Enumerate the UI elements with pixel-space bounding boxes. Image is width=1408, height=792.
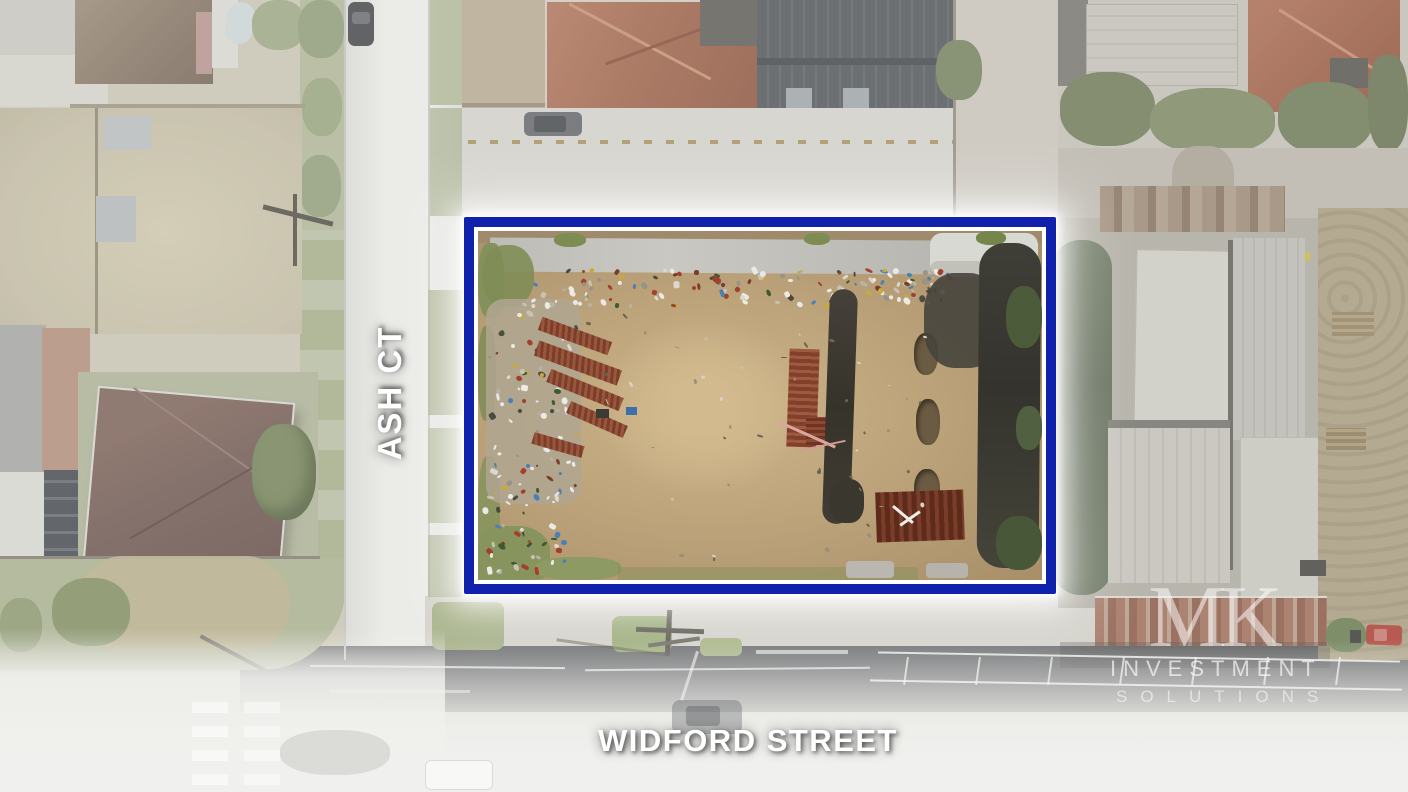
debris-dot bbox=[887, 429, 890, 432]
site-bush-right-a bbox=[1006, 286, 1042, 348]
debris-dot bbox=[558, 472, 561, 475]
debris-dot bbox=[494, 444, 498, 449]
debris-dot bbox=[693, 269, 698, 274]
debris-dot bbox=[548, 522, 557, 530]
debris-dot bbox=[581, 282, 587, 288]
debris-dot bbox=[487, 495, 494, 500]
debris-dot bbox=[588, 303, 591, 307]
debris-dot bbox=[923, 336, 927, 339]
debris-dot bbox=[729, 425, 732, 430]
debris-dot bbox=[552, 501, 555, 504]
debris-dot bbox=[508, 419, 513, 424]
debris-dot bbox=[763, 277, 767, 281]
debris-dot bbox=[857, 362, 862, 365]
property-boundary bbox=[464, 217, 1056, 594]
debris-dot bbox=[622, 314, 628, 320]
debris-dot bbox=[781, 357, 787, 359]
debris-dot bbox=[617, 280, 622, 285]
debris-dot bbox=[910, 292, 916, 298]
debris-dot bbox=[533, 282, 539, 287]
debris-dot bbox=[530, 304, 535, 309]
debris-dot bbox=[584, 298, 587, 301]
debris-zone-bottom-left bbox=[480, 479, 568, 574]
debris-dot bbox=[553, 388, 561, 394]
debris-dot bbox=[824, 546, 830, 552]
ghost-crossing-dash bbox=[192, 774, 228, 785]
debris-dot bbox=[736, 280, 741, 285]
debris-dot bbox=[560, 539, 566, 545]
debris-dot bbox=[919, 401, 922, 405]
debris-dot bbox=[793, 377, 796, 380]
debris-dot bbox=[554, 531, 561, 538]
debris-dot bbox=[859, 487, 862, 491]
debris-dot bbox=[550, 560, 554, 565]
debris-dot bbox=[536, 488, 539, 493]
ghost-crossing-dash bbox=[244, 702, 280, 713]
debris-dot bbox=[615, 303, 619, 309]
site-left-top-green bbox=[482, 245, 534, 307]
debris-dot bbox=[671, 497, 675, 501]
debris-dot bbox=[674, 346, 680, 349]
debris-dot bbox=[653, 275, 659, 280]
debris-dot bbox=[494, 524, 501, 529]
debris-dot bbox=[512, 364, 518, 368]
debris-dot bbox=[511, 344, 515, 348]
debris-dot bbox=[482, 506, 489, 515]
debris-dot bbox=[679, 553, 685, 557]
debris-dot bbox=[704, 337, 708, 341]
debris-dot bbox=[497, 452, 502, 456]
debris-dot bbox=[751, 266, 758, 275]
debris-dot bbox=[651, 447, 655, 449]
debris-dot bbox=[817, 470, 821, 474]
debris-dot bbox=[757, 434, 763, 438]
watermark-logo: MK INVESTMENT SOLUTIONS bbox=[1103, 576, 1321, 707]
debris-dot bbox=[541, 412, 549, 420]
debris-dot bbox=[530, 466, 535, 470]
ghost-crossing-dash bbox=[192, 750, 228, 761]
debris-dot bbox=[517, 408, 522, 413]
debris-dot bbox=[561, 288, 567, 291]
debris-dot bbox=[640, 282, 648, 290]
debris-dot bbox=[920, 503, 924, 508]
debris-dot bbox=[536, 400, 539, 402]
debris-dot bbox=[541, 541, 547, 546]
site-bush-right-b bbox=[996, 516, 1042, 570]
debris-dot bbox=[658, 292, 666, 300]
debris-dot bbox=[556, 547, 563, 553]
debris-dot bbox=[882, 269, 887, 273]
ghost-crossing-dash bbox=[244, 750, 280, 761]
debris-dot bbox=[496, 474, 502, 479]
debris-dot bbox=[490, 468, 499, 476]
watermark-line-solutions: SOLUTIONS bbox=[1103, 687, 1321, 707]
debris-dot bbox=[628, 303, 632, 308]
debris-dot bbox=[827, 288, 832, 292]
debris-dot bbox=[495, 507, 500, 514]
debris-dot bbox=[922, 279, 929, 284]
debris-dot bbox=[494, 463, 498, 468]
debris-dot bbox=[863, 432, 866, 435]
debris-dot bbox=[526, 309, 535, 318]
debris-dot bbox=[866, 523, 870, 527]
debris-dot bbox=[501, 524, 504, 527]
aerial-photo: ASH CT WIDFORD STREET MK INVESTMENT SOLU… bbox=[0, 0, 1408, 792]
property-site-photo bbox=[478, 231, 1042, 580]
debris-dot bbox=[491, 541, 496, 548]
debris-dot bbox=[505, 374, 510, 379]
debris-dot bbox=[605, 398, 609, 404]
debris-dot bbox=[907, 272, 913, 277]
debris-zone-scatter bbox=[573, 311, 933, 561]
debris-dot bbox=[521, 385, 529, 392]
debris-dot bbox=[775, 300, 781, 304]
debris-dot bbox=[535, 465, 538, 468]
debris-dot bbox=[536, 555, 541, 560]
debris-dot bbox=[513, 530, 521, 537]
debris-dot bbox=[609, 298, 612, 301]
site-bush-right-c bbox=[1016, 406, 1042, 450]
debris-dot bbox=[555, 459, 560, 465]
debris-dot bbox=[888, 295, 893, 300]
debris-dot bbox=[578, 301, 583, 307]
debris-dot bbox=[696, 282, 701, 290]
debris-dot bbox=[520, 467, 527, 474]
debris-dot bbox=[540, 291, 546, 298]
debris-dot bbox=[496, 389, 501, 394]
site-grass-tuft-a bbox=[554, 233, 586, 247]
debris-dot bbox=[810, 299, 816, 305]
debris-dot bbox=[554, 300, 557, 304]
debris-dot bbox=[780, 274, 786, 279]
ghost-tree bbox=[280, 730, 390, 775]
ghost-crossing-dash bbox=[192, 726, 228, 737]
debris-dot bbox=[849, 475, 853, 479]
debris-dot bbox=[712, 557, 715, 561]
debris-dot bbox=[606, 284, 612, 291]
ghost-crossing-dash bbox=[244, 726, 280, 737]
ghost-car-white bbox=[425, 760, 493, 790]
debris-dot bbox=[923, 270, 929, 276]
debris-dot bbox=[549, 409, 554, 414]
debris-dot bbox=[673, 281, 679, 288]
site-concrete-bit-a bbox=[846, 561, 894, 578]
site-concrete-bit-b bbox=[926, 563, 968, 578]
debris-dot bbox=[662, 269, 667, 273]
debris-dot bbox=[554, 492, 560, 497]
debris-dot bbox=[797, 270, 803, 274]
site-dark-object bbox=[596, 409, 609, 418]
debris-dot bbox=[530, 298, 536, 303]
debris-dot bbox=[522, 302, 528, 307]
debris-dot bbox=[525, 503, 528, 506]
debris-dot bbox=[488, 411, 496, 420]
debris-dot bbox=[818, 281, 824, 287]
debris-dot bbox=[561, 397, 568, 405]
debris-dot bbox=[596, 277, 601, 282]
debris-dot bbox=[897, 297, 901, 302]
debris-dot bbox=[867, 533, 872, 538]
debris-dot bbox=[516, 454, 520, 457]
debris-dot bbox=[566, 267, 572, 273]
debris-dot bbox=[526, 339, 533, 346]
debris-dot bbox=[550, 457, 555, 462]
debris-dot bbox=[551, 399, 555, 404]
debris-dot bbox=[582, 270, 585, 274]
watermark-monogram: MK bbox=[1103, 576, 1321, 660]
debris-dot bbox=[676, 271, 682, 278]
street-label-widford: WIDFORD STREET bbox=[598, 723, 898, 759]
debris-dot bbox=[893, 287, 901, 294]
debris-dot bbox=[628, 381, 634, 388]
debris-dot bbox=[599, 298, 607, 307]
debris-dot bbox=[566, 461, 571, 465]
debris-dot bbox=[796, 301, 803, 308]
debris-dot bbox=[879, 505, 884, 506]
debris-dot bbox=[905, 397, 907, 400]
debris-dot bbox=[845, 399, 849, 403]
debris-dot bbox=[520, 564, 529, 571]
debris-dot bbox=[643, 331, 646, 336]
debris-dot bbox=[693, 379, 697, 384]
debris-dot bbox=[765, 288, 772, 296]
debris-dot bbox=[799, 333, 802, 336]
debris-dot bbox=[632, 283, 635, 288]
debris-dot bbox=[720, 397, 724, 401]
debris-dot bbox=[865, 290, 872, 296]
debris-dot bbox=[586, 322, 591, 326]
debris-dot bbox=[702, 375, 706, 378]
debris-dot bbox=[605, 373, 609, 376]
debris-dot bbox=[676, 304, 679, 309]
ghost-crossing-dash bbox=[244, 774, 280, 785]
debris-dot bbox=[932, 276, 935, 279]
debris-dot bbox=[740, 365, 744, 369]
debris-dot bbox=[907, 470, 910, 473]
debris-dot bbox=[796, 276, 800, 281]
debris-dot bbox=[494, 491, 497, 495]
debris-dot bbox=[519, 484, 522, 486]
debris-dot bbox=[486, 566, 492, 574]
debris-dot bbox=[551, 538, 557, 541]
debris-dot bbox=[619, 274, 626, 279]
debris-dot bbox=[513, 563, 520, 571]
site-blue-tarp bbox=[626, 407, 637, 415]
debris-dot bbox=[726, 483, 730, 487]
debris-dot bbox=[488, 355, 492, 359]
debris-dot bbox=[896, 281, 901, 287]
debris-dot bbox=[521, 398, 526, 404]
watermark-line-investment: INVESTMENT bbox=[1103, 656, 1321, 682]
debris-dot bbox=[499, 402, 505, 408]
debris-dot bbox=[519, 488, 526, 494]
debris-dot bbox=[652, 289, 658, 295]
debris-dot bbox=[556, 409, 560, 412]
debris-dot bbox=[562, 558, 567, 563]
debris-dot bbox=[522, 511, 525, 515]
debris-dot bbox=[734, 286, 741, 293]
debris-dot bbox=[507, 494, 513, 499]
street-label-ash-ct: ASH CT bbox=[371, 326, 409, 461]
debris-dot bbox=[505, 500, 511, 505]
debris-dot bbox=[495, 351, 498, 354]
debris-dot bbox=[495, 393, 500, 401]
debris-dot bbox=[836, 269, 839, 272]
debris-dot bbox=[887, 385, 890, 386]
debris-dot bbox=[589, 268, 595, 274]
debris-dot bbox=[804, 342, 809, 348]
debris-dot bbox=[788, 279, 794, 282]
debris-dot bbox=[877, 288, 883, 295]
debris-dot bbox=[747, 279, 751, 284]
debris-dot bbox=[507, 398, 513, 404]
debris-dot bbox=[691, 286, 697, 292]
debris-dot bbox=[501, 485, 508, 491]
property-boundary-inner-line bbox=[474, 227, 1046, 584]
debris-dot bbox=[828, 338, 834, 343]
debris-dot bbox=[722, 437, 726, 441]
debris-dot bbox=[490, 553, 493, 558]
debris-dot bbox=[856, 449, 859, 452]
ghost-crossing-dash bbox=[192, 702, 228, 713]
debris-dot bbox=[527, 542, 533, 548]
debris-dot bbox=[515, 374, 523, 382]
site-grass-tuft-b bbox=[804, 233, 830, 245]
